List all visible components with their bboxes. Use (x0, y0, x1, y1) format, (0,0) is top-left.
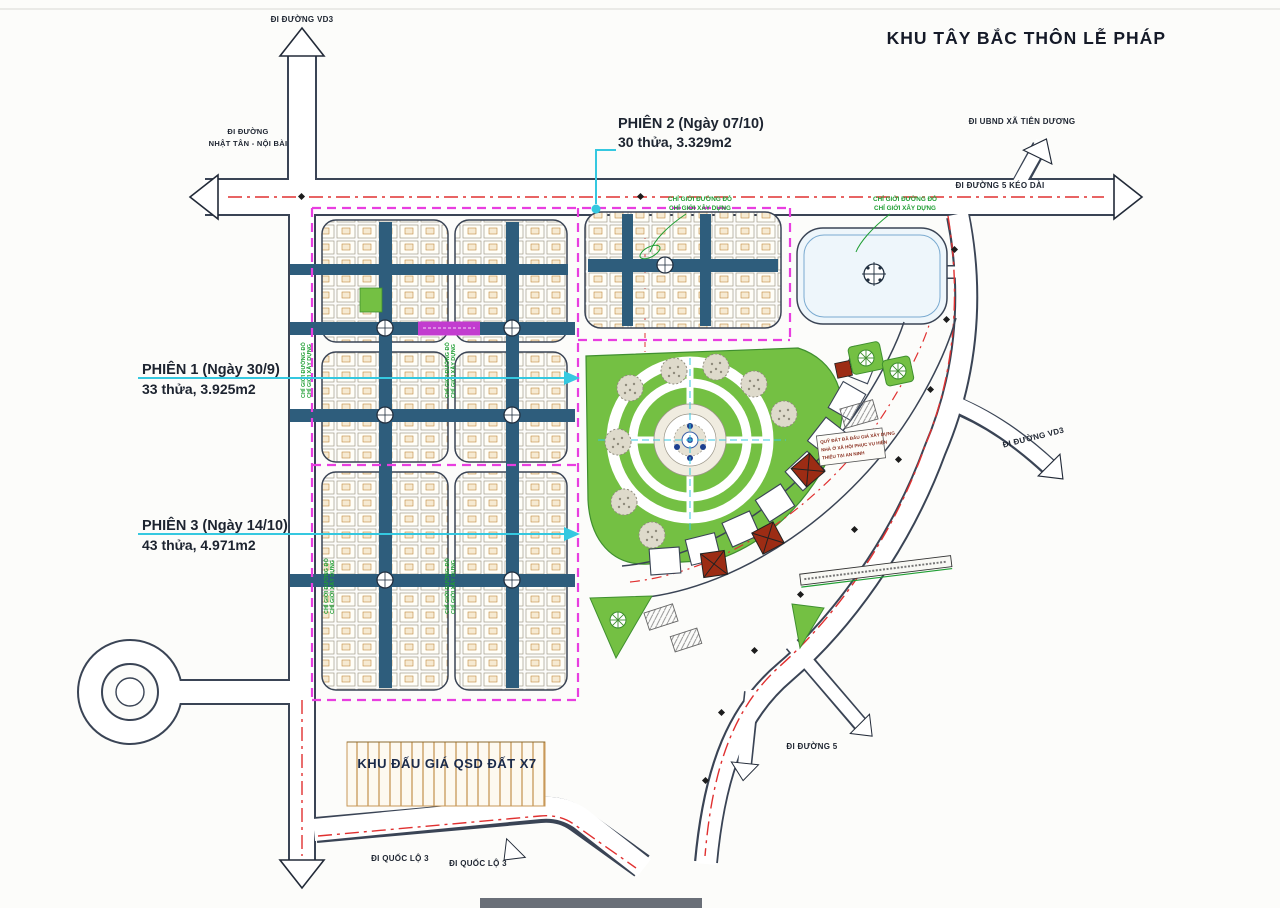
roundabout-island (116, 678, 144, 706)
arrow-right-duong5-icon (1114, 175, 1142, 219)
session-2-name: PHIÊN 2 (Ngày 07/10) (618, 114, 764, 132)
note-red-line: CHỈ GIỚI ĐƯỜNG ĐỎ (873, 194, 937, 203)
note-construction-line: CHỈ GIỚI XÂY DỰNG (874, 203, 936, 212)
planning-map-page: KHU ĐẤU GIÁ QSD ĐẤT X7 CHỈ GIỚI ĐƯỜNG ĐỎ… (0, 0, 1280, 908)
note-red-line-vertical: CHỈ GIỚI ĐƯỜNG ĐỎ (322, 557, 330, 614)
session-1-name: PHIÊN 1 (Ngày 30/9) (142, 360, 280, 378)
note-red-line: CHỈ GIỚI ĐƯỜNG ĐỎ (668, 194, 732, 203)
note-red-line-vertical: CHỈ GIỚI ĐƯỜNG ĐỎ (299, 341, 307, 398)
road-label-quocloc3-b: ĐI QUỐC LỘ 3 (449, 858, 507, 868)
road-label-vd3-top: ĐI ĐƯỜNG VD3 (271, 15, 334, 24)
road-label-duong5: ĐI ĐƯỜNG 5 (786, 742, 837, 751)
session-2-detail: 30 thửa, 3.329m2 (618, 134, 732, 150)
auction-area-label: KHU ĐẤU GIÁ QSD ĐẤT X7 (357, 756, 536, 771)
note-construction-line-vertical: CHỈ GIỚI XÂY DỰNG (449, 560, 457, 614)
session-3-name: PHIÊN 3 (Ngày 14/10) (142, 516, 288, 534)
note-red-line-vertical: CHỈ GIỚI ĐƯỜNG ĐỎ (443, 557, 451, 614)
note-construction-line-vertical: CHỈ GIỚI XÂY DỰNG (305, 344, 313, 398)
session-3-detail: 43 thửa, 4.971m2 (142, 537, 256, 553)
note-construction-line-vertical: CHỈ GIỚI XÂY DỰNG (449, 344, 457, 398)
road-label-duong5-keodai: ĐI ĐƯỜNG 5 KÉO DÀI (955, 181, 1044, 190)
highlighted-road-segment (418, 322, 480, 336)
hatched-plot (670, 628, 702, 652)
auction-strip-x7: KHU ĐẤU GIÁ QSD ĐẤT X7 (347, 742, 545, 806)
road-label-ubnd: ĐI UBND XÃ TIÊN DƯƠNG (969, 117, 1076, 126)
map-canvas: KHU ĐẤU GIÁ QSD ĐẤT X7 CHỈ GIỚI ĐƯỜNG ĐỎ… (0, 0, 1280, 908)
note-red-line-vertical: CHỈ GIỚI ĐƯỜNG ĐỎ (443, 341, 451, 398)
arrow-up-vd3-icon (280, 28, 324, 56)
note-construction-line-vertical: CHỈ GIỚI XÂY DỰNG (328, 560, 336, 614)
red-building-small (835, 360, 853, 378)
note-construction-line: CHỈ GIỚI XÂY DỰNG (669, 203, 731, 212)
bottom-dark-bar (480, 898, 702, 908)
map-title: KHU TÂY BẮC THÔN LỄ PHÁP (887, 27, 1166, 48)
road-label-quocloc3-a: ĐI QUỐC LỘ 3 (371, 853, 429, 863)
road-label-nhattan-2: NHẬT TÂN - NỘI BÀI (209, 139, 288, 148)
session-1-detail: 33 thửa, 3.925m2 (142, 381, 256, 397)
road-label-nhattan-1: ĐI ĐƯỜNG (227, 127, 268, 136)
pond-block (797, 228, 947, 324)
hatched-plot (644, 604, 678, 630)
arrow-down-quocloc3-icon (280, 860, 324, 888)
